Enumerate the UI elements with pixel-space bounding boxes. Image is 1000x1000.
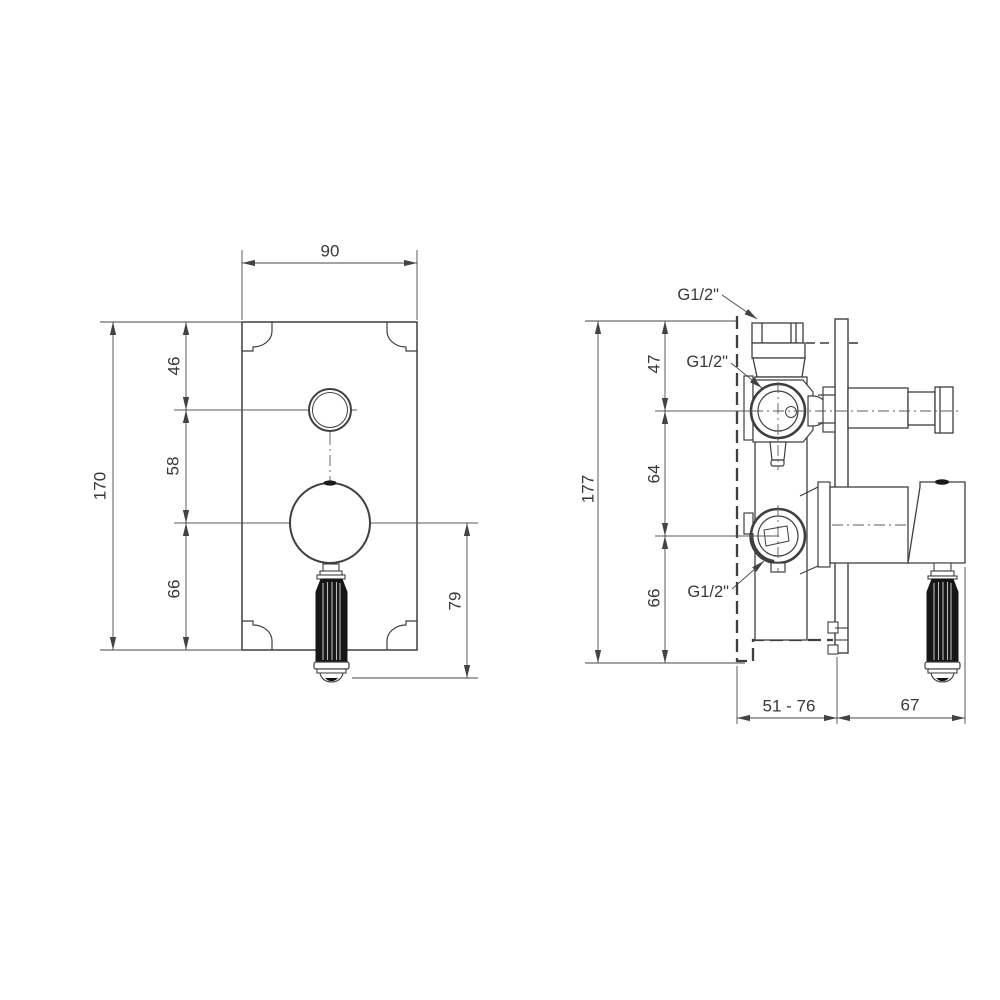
dim-front-top-segment: 46: [165, 357, 184, 376]
dim-depth-range: 51 - 76: [763, 697, 816, 716]
cartridge-flange-disc: [818, 482, 830, 567]
dim-side-top-segment: 47: [645, 355, 664, 374]
diverter-button-front: [309, 389, 351, 431]
mounting-plate: [835, 319, 848, 653]
dim-handle-depth: 67: [901, 696, 920, 715]
wall-nut: [823, 387, 835, 432]
lever-head: [908, 482, 965, 563]
dim-front-handle-drop: 79: [446, 592, 465, 611]
dim-side-bottom-segment: 66: [645, 589, 664, 608]
lever-pivot-dot: [935, 479, 949, 485]
lever-assembly-side: [830, 479, 965, 682]
label-thread-mid: G1/2": [686, 353, 728, 371]
dim-front-mid-segment: 58: [164, 457, 183, 476]
handle-cap-band: [314, 662, 349, 669]
button-cap: [935, 387, 953, 433]
dim-front-bottom-segment: 66: [165, 580, 184, 599]
technical-drawing-page: 90 170 46 58 66 79: [0, 0, 1000, 1000]
valve-body: [752, 323, 807, 640]
diverter-button-shaft: [848, 387, 953, 433]
side-view: 177 47 64 66 G1/2" G1/2" G1/2" 51 - 76 6…: [579, 286, 966, 724]
handle-pivot-dot: [324, 480, 337, 485]
shower-valve-drawing: 90 170 46 58 66 79: [0, 0, 1000, 1000]
handle-cap-band-side: [925, 662, 960, 669]
dim-side-mid-segment: 64: [645, 465, 664, 484]
label-thread-top: G1/2": [677, 286, 719, 304]
dim-front-height-total: 170: [91, 472, 110, 500]
front-view: 90 170 46 58 66 79: [91, 242, 479, 683]
dim-side-height-total: 177: [579, 475, 598, 503]
leader-thread-top: [722, 295, 757, 319]
dim-front-width: 90: [321, 242, 340, 261]
label-thread-bottom: G1/2": [687, 583, 729, 601]
